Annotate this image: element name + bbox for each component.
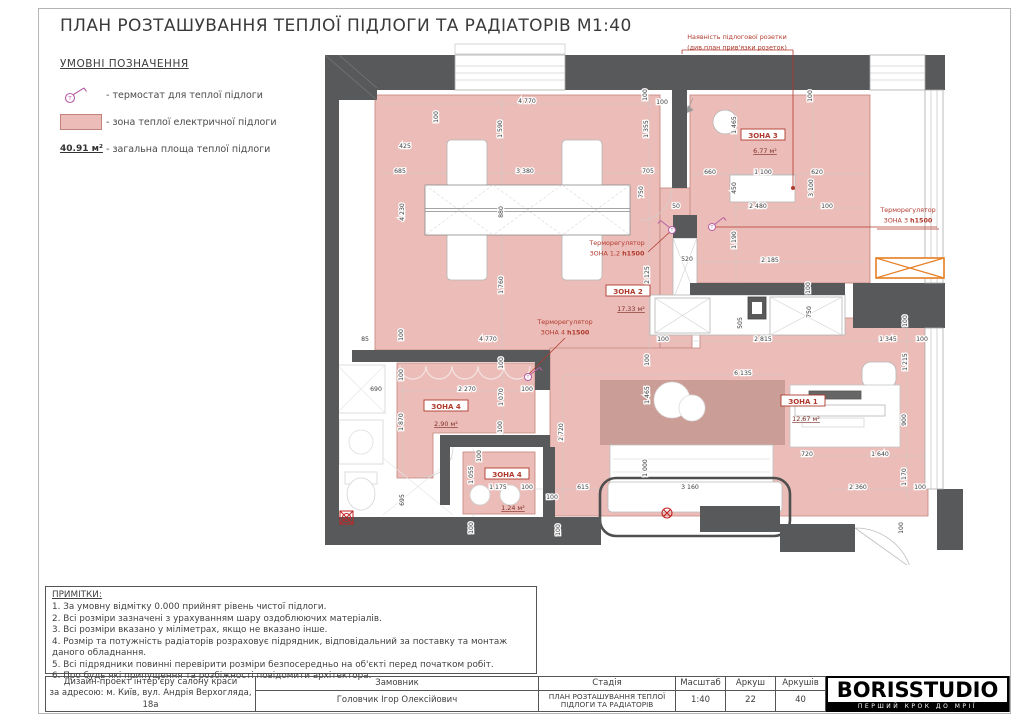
dimension-label: 100 <box>821 203 833 210</box>
dimension-label: 100 <box>398 369 405 381</box>
sheets-label: Аркушів <box>776 677 825 691</box>
dimension-label: 100 <box>644 354 651 366</box>
dimension-label: 750 <box>806 306 813 318</box>
dimension-label: 520 <box>681 256 693 263</box>
dimension-label: 1 870 <box>398 413 405 431</box>
dimension-label: 100 <box>498 357 505 369</box>
dimension-label: 615 <box>577 484 589 491</box>
dimension-label: 6 135 <box>734 370 752 377</box>
dimension-label: 100 <box>398 329 405 341</box>
annotation-text: ЗОНА 1,2 h1500 <box>590 250 645 258</box>
thermostat-icon: T <box>60 85 106 105</box>
logo-text: BORISSTUDIO <box>828 678 1007 702</box>
chair <box>562 140 602 188</box>
dimension-label: 425 <box>399 143 411 150</box>
dimension-label: 100 <box>468 522 475 534</box>
annotation-text: ЗОНА 4 h1500 <box>541 329 590 337</box>
chair <box>447 232 487 280</box>
zone-area: 17.33 м² <box>617 305 645 313</box>
total-area-value: 40.91 м² <box>60 144 103 154</box>
dimension-label: 100 <box>657 336 669 343</box>
sheets-value: 40 <box>776 691 825 711</box>
sheet-value: 22 <box>726 691 775 711</box>
dimension-label: 100 <box>916 336 928 343</box>
dimension-label: 750 <box>638 186 645 198</box>
notes: ПРИМІТКИ: 1. За умовну відмітку 0.000 пр… <box>45 586 537 674</box>
dimension-label: 1 640 <box>871 451 889 458</box>
dimension-label: 100 <box>807 90 814 102</box>
dimension-label: 1 590 <box>497 120 504 138</box>
dimension-label: 1 070 <box>498 388 505 406</box>
dimension-label: 900 <box>901 414 908 426</box>
dimension-label: 2 360 <box>849 484 867 491</box>
zone-area: 2.90 м² <box>434 420 458 428</box>
title-block: Дизайн-проект інтер'єру салону красиза а… <box>45 676 1010 712</box>
stage-cell: Стадія ПЛАН РОЗТАШУВАННЯ ТЕПЛОЇ ПІДЛОГИ … <box>539 677 676 711</box>
zone-name: ЗОНА 1 <box>788 398 818 406</box>
dimension-label: 4 230 <box>399 203 406 221</box>
dimension-label: 3 380 <box>516 168 534 175</box>
dimension-label: 2 270 <box>458 386 476 393</box>
dimension-label: 100 <box>521 386 533 393</box>
window <box>870 55 925 90</box>
dimension-label: 695 <box>399 494 406 506</box>
dimension-label: 720 <box>801 451 813 458</box>
scale-value: 1:40 <box>676 691 725 711</box>
floor-plan: 4251004 7701001001 5901 3556853 38070575… <box>325 20 965 565</box>
window-sill <box>455 44 565 54</box>
dimension-label: 100 <box>521 484 533 491</box>
dimension-label: 1 465 <box>644 386 651 404</box>
dimension-label: 505 <box>737 317 744 329</box>
dimension-label: 660 <box>704 169 716 176</box>
heated-zone-swatch <box>60 114 106 130</box>
zone-area: 1.24 м² <box>501 504 525 512</box>
dimension-label: 100 <box>433 111 440 123</box>
zone-name: ЗОНА 4 <box>492 471 522 479</box>
logo-slogan: ПЕРШИЙ КРОК ДО МРІЇ <box>828 702 1007 710</box>
floor-socket-marker <box>791 186 795 190</box>
dimension-label: 100 <box>497 421 504 433</box>
dimension-label: 1 215 <box>902 353 909 371</box>
notes-heading: ПРИМІТКИ: <box>52 590 530 601</box>
svg-text:T: T <box>710 225 714 230</box>
sheet-label: Аркуш <box>726 677 775 691</box>
annotation-text: Терморегулятор <box>536 318 592 326</box>
studio-logo: BORISSTUDIO ПЕРШИЙ КРОК ДО МРІЇ <box>826 676 1009 712</box>
legend-item-thermostat: T - термостат для теплої підлоги <box>60 86 310 104</box>
zone-name: ЗОНА 2 <box>613 288 643 296</box>
dimension-label: 1 190 <box>731 231 738 249</box>
dimension-label: 2 480 <box>749 203 767 210</box>
annotation-text: ЗОНА 3 h1500 <box>884 217 933 225</box>
dimension-label: 100 <box>546 494 558 501</box>
zone-name: ЗОНА 4 <box>431 403 461 411</box>
dimension-label: 1 100 <box>754 169 772 176</box>
dimension-label: 4 770 <box>518 98 536 105</box>
dimension-label: 100 <box>805 282 812 294</box>
dimension-label: 50 <box>672 203 680 210</box>
dimension-label: 1 760 <box>498 276 505 294</box>
scale-cell: Масштаб 1:40 <box>676 677 726 711</box>
window <box>455 55 565 90</box>
dimension-label: 1 345 <box>879 336 897 343</box>
stage-label: Стадія <box>539 677 675 691</box>
dimension-label: 100 <box>656 99 668 106</box>
dimension-label: 2 815 <box>754 336 772 343</box>
dimension-label: 100 <box>914 484 926 491</box>
dimension-label: 100 <box>476 450 483 462</box>
sheets-cell: Аркушів 40 <box>776 677 826 711</box>
annotation-text: (див.план прив'язки розеток) <box>687 44 787 52</box>
dimension-label: 690 <box>370 386 382 393</box>
dimension-label: 880 <box>498 206 505 218</box>
zone-area: 12.67 м² <box>792 415 820 423</box>
legend-item-zone: - зона теплої електричної підлоги <box>60 113 310 131</box>
svg-text:T: T <box>526 375 530 380</box>
dimension-label: 2 125 <box>644 266 651 284</box>
dimension-label: 2 720 <box>558 423 565 441</box>
dimension-label: 450 <box>731 182 738 194</box>
stage-value: ПЛАН РОЗТАШУВАННЯ ТЕПЛОЇ ПІДЛОГИ ТА РАДІ… <box>539 691 675 711</box>
customer-label: Замовник <box>256 677 538 691</box>
dimension-label: 85 <box>361 336 369 343</box>
dimension-label: 100 <box>555 524 562 536</box>
legend-label: - загальна площа теплої підлоги <box>106 144 270 155</box>
svg-text:T: T <box>670 228 674 233</box>
annotation-text: Терморегулятор <box>588 239 644 247</box>
legend-label: - зона теплої електричної підлоги <box>106 117 277 128</box>
dimension-label: 620 <box>811 169 823 176</box>
dimension-label: 4 770 <box>479 336 497 343</box>
dimension-label: 100 <box>898 522 905 534</box>
legend-heading: УМОВНІ ПОЗНАЧЕННЯ <box>60 58 310 70</box>
dimension-label: 3 100 <box>808 179 815 197</box>
scale-label: Масштаб <box>676 677 725 691</box>
side-table <box>730 175 795 202</box>
armchair <box>862 362 896 388</box>
dimension-label: 685 <box>394 168 406 175</box>
pendant-lamp <box>679 395 705 421</box>
zone-name: ЗОНА 3 <box>748 132 778 140</box>
zone-area: 6.77 м² <box>753 147 777 155</box>
window <box>925 90 943 283</box>
project-description: Дизайн-проект інтер'єру салону красиза а… <box>46 677 256 711</box>
legend-item-area: 40.91 м² - загальна площа теплої підлоги <box>60 140 310 158</box>
annotation-text: Терморегулятор <box>879 206 935 214</box>
legend-label: - термостат для теплої підлоги <box>106 90 263 101</box>
dimension-label: 1 055 <box>468 466 475 484</box>
sheet-cell: Аркуш 22 <box>726 677 776 711</box>
notes-list: 1. За умовну відмітку 0.000 прийнят ріве… <box>52 602 530 682</box>
dimension-label: 1 355 <box>643 120 650 138</box>
dimension-label: 2 185 <box>761 257 779 264</box>
annotation-text: Наявність підлогової розетки <box>687 33 786 41</box>
dimension-label: 1 170 <box>901 468 908 486</box>
dimension-label: 1 000 <box>642 459 649 477</box>
dimension-label: 100 <box>642 89 649 101</box>
customer-value: Головчик Ігор Олексійович <box>256 691 538 711</box>
window <box>925 328 943 489</box>
dimension-label: 705 <box>642 168 654 175</box>
dimension-label: 1 465 <box>731 116 738 134</box>
drawing-sheet: { "title": "ПЛАН РОЗТАШУВАННЯ ТЕПЛОЇ ПІД… <box>0 0 1024 724</box>
legend: УМОВНІ ПОЗНАЧЕННЯ T - термостат для тепл… <box>60 58 310 167</box>
sink <box>470 485 490 505</box>
customer-cell: Замовник Головчик Ігор Олексійович <box>256 677 539 711</box>
dimension-label: 100 <box>902 315 909 327</box>
dimension-label: 3 160 <box>681 484 699 491</box>
radiator <box>876 258 944 278</box>
chair <box>447 140 487 188</box>
dimension-label: 1 175 <box>489 484 507 491</box>
